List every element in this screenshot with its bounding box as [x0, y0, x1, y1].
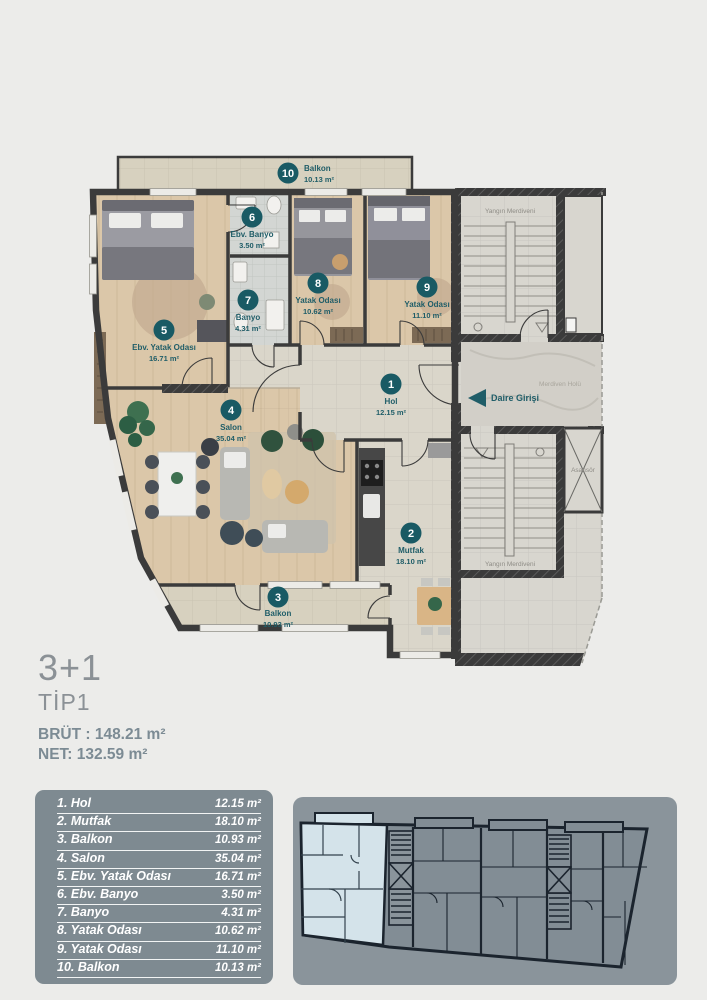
svg-text:3.50 m²: 3.50 m²	[239, 241, 265, 250]
stair-hall-label: Merdiven Holü	[539, 381, 581, 388]
net-area-label: NET: 132.59 m²	[38, 745, 165, 765]
room-label: 5. Ebv. Yatak Odası	[57, 869, 171, 883]
room-label: 3. Balkon	[57, 832, 113, 846]
room-label: 4. Salon	[57, 851, 105, 865]
room-area-value: 10.93 m²	[215, 834, 261, 846]
svg-text:4: 4	[228, 405, 235, 417]
svg-text:11.10 m²: 11.10 m²	[412, 311, 442, 320]
room-label: 10. Balkon	[57, 960, 120, 974]
room-area-value: 10.13 m²	[215, 962, 261, 974]
table-row: 7. Banyo 4.31 m²	[57, 905, 261, 923]
svg-text:4.31 m²: 4.31 m²	[235, 324, 261, 333]
svg-text:Ebv. Banyo: Ebv. Banyo	[231, 230, 274, 239]
room-area-value: 3.50 m²	[221, 889, 261, 901]
table-row: 1. Hol 12.15 m²	[57, 796, 261, 814]
room-label: 2. Mutfak	[57, 814, 111, 828]
table-row: 3. Balkon 10.93 m²	[57, 832, 261, 850]
elevator-label: Asansör	[571, 467, 596, 474]
svg-text:10.93 m²: 10.93 m²	[263, 620, 294, 629]
room-label: 6. Ebv. Banyo	[57, 887, 138, 901]
svg-text:6: 6	[249, 212, 255, 224]
gross-area-label: BRÜT : 148.21 m²	[38, 725, 165, 745]
room-area-value: 10.62 m²	[215, 925, 261, 937]
room-area-value: 11.10 m²	[216, 944, 261, 956]
svg-text:Yatak Odası: Yatak Odası	[295, 296, 340, 305]
svg-text:16.71 m²: 16.71 m²	[149, 354, 180, 363]
key-plan-card	[293, 797, 677, 985]
svg-text:8: 8	[315, 278, 321, 290]
keyplan-highlighted-unit	[301, 823, 387, 945]
table-row: 4. Salon 35.04 m²	[57, 851, 261, 869]
room-area-value: 18.10 m²	[215, 816, 261, 828]
table-row: 6. Ebv. Banyo 3.50 m²	[57, 887, 261, 905]
svg-text:7: 7	[245, 295, 251, 307]
room-label: 1. Hol	[57, 796, 91, 810]
svg-text:10.62 m²: 10.62 m²	[303, 307, 334, 316]
table-row: 10. Balkon 10.13 m²	[57, 960, 261, 978]
svg-text:3: 3	[275, 592, 281, 604]
room-area-value: 12.15 m²	[215, 798, 261, 810]
table-row: 9. Yatak Odası 11.10 m²	[57, 942, 261, 960]
area-table-card: 1. Hol 12.15 m² 2. Mutfak 18.10 m² 3. Ba…	[35, 790, 273, 984]
room-area-value: 16.71 m²	[215, 871, 261, 883]
svg-text:Yatak Odası: Yatak Odası	[404, 300, 449, 309]
room-area-value: 35.04 m²	[215, 853, 261, 865]
shaft-room	[564, 196, 602, 334]
table-row: 8. Yatak Odası 10.62 m²	[57, 923, 261, 941]
room-label: 8. Yatak Odası	[57, 923, 142, 937]
svg-text:5: 5	[161, 325, 167, 337]
svg-text:Ebv. Yatak Odası: Ebv. Yatak Odası	[132, 343, 196, 352]
table-row: 2. Mutfak 18.10 m²	[57, 814, 261, 832]
svg-text:Hol: Hol	[385, 397, 398, 406]
svg-text:35.04 m²: 35.04 m²	[216, 434, 247, 443]
room-label: 7. Banyo	[57, 905, 109, 919]
svg-text:18.10 m²: 18.10 m²	[396, 557, 427, 566]
svg-text:Banyo: Banyo	[236, 313, 261, 322]
fire-escape-bottom-label: Yangın Merdiveni	[485, 561, 535, 568]
svg-text:Mutfak: Mutfak	[398, 546, 424, 555]
svg-text:2: 2	[408, 528, 414, 540]
floor-plan: Yangın Merdiveni Yangın Merdiveni Merdiv…	[60, 140, 660, 680]
balcony-10-floor	[118, 157, 412, 192]
title-block: 3+1 TİP1 BRÜT : 148.21 m² NET: 132.59 m²	[38, 648, 165, 765]
svg-text:10: 10	[282, 168, 294, 180]
room-area-value: 4.31 m²	[221, 907, 261, 919]
svg-text:Salon: Salon	[220, 423, 242, 432]
plan-variant-label: TİP1	[38, 689, 165, 716]
fire-escape-top-label: Yangın Merdiveni	[485, 208, 535, 215]
table-row: 5. Ebv. Yatak Odası 16.71 m²	[57, 869, 261, 887]
hall-floor	[228, 345, 455, 440]
svg-text:10.13 m²: 10.13 m²	[304, 175, 335, 184]
key-plan	[293, 797, 677, 985]
entrance-label: Daire Girişi	[491, 393, 539, 403]
plan-type-label: 3+1	[38, 648, 165, 688]
svg-text:Balkon: Balkon	[265, 609, 292, 618]
svg-text:12.15 m²: 12.15 m²	[376, 408, 407, 417]
svg-text:9: 9	[424, 282, 430, 294]
svg-text:Balkon: Balkon	[304, 164, 331, 173]
svg-text:1: 1	[388, 379, 394, 391]
room-label: 9. Yatak Odası	[57, 942, 142, 956]
brochure-page: Yangın Merdiveni Yangın Merdiveni Merdiv…	[0, 0, 707, 1000]
